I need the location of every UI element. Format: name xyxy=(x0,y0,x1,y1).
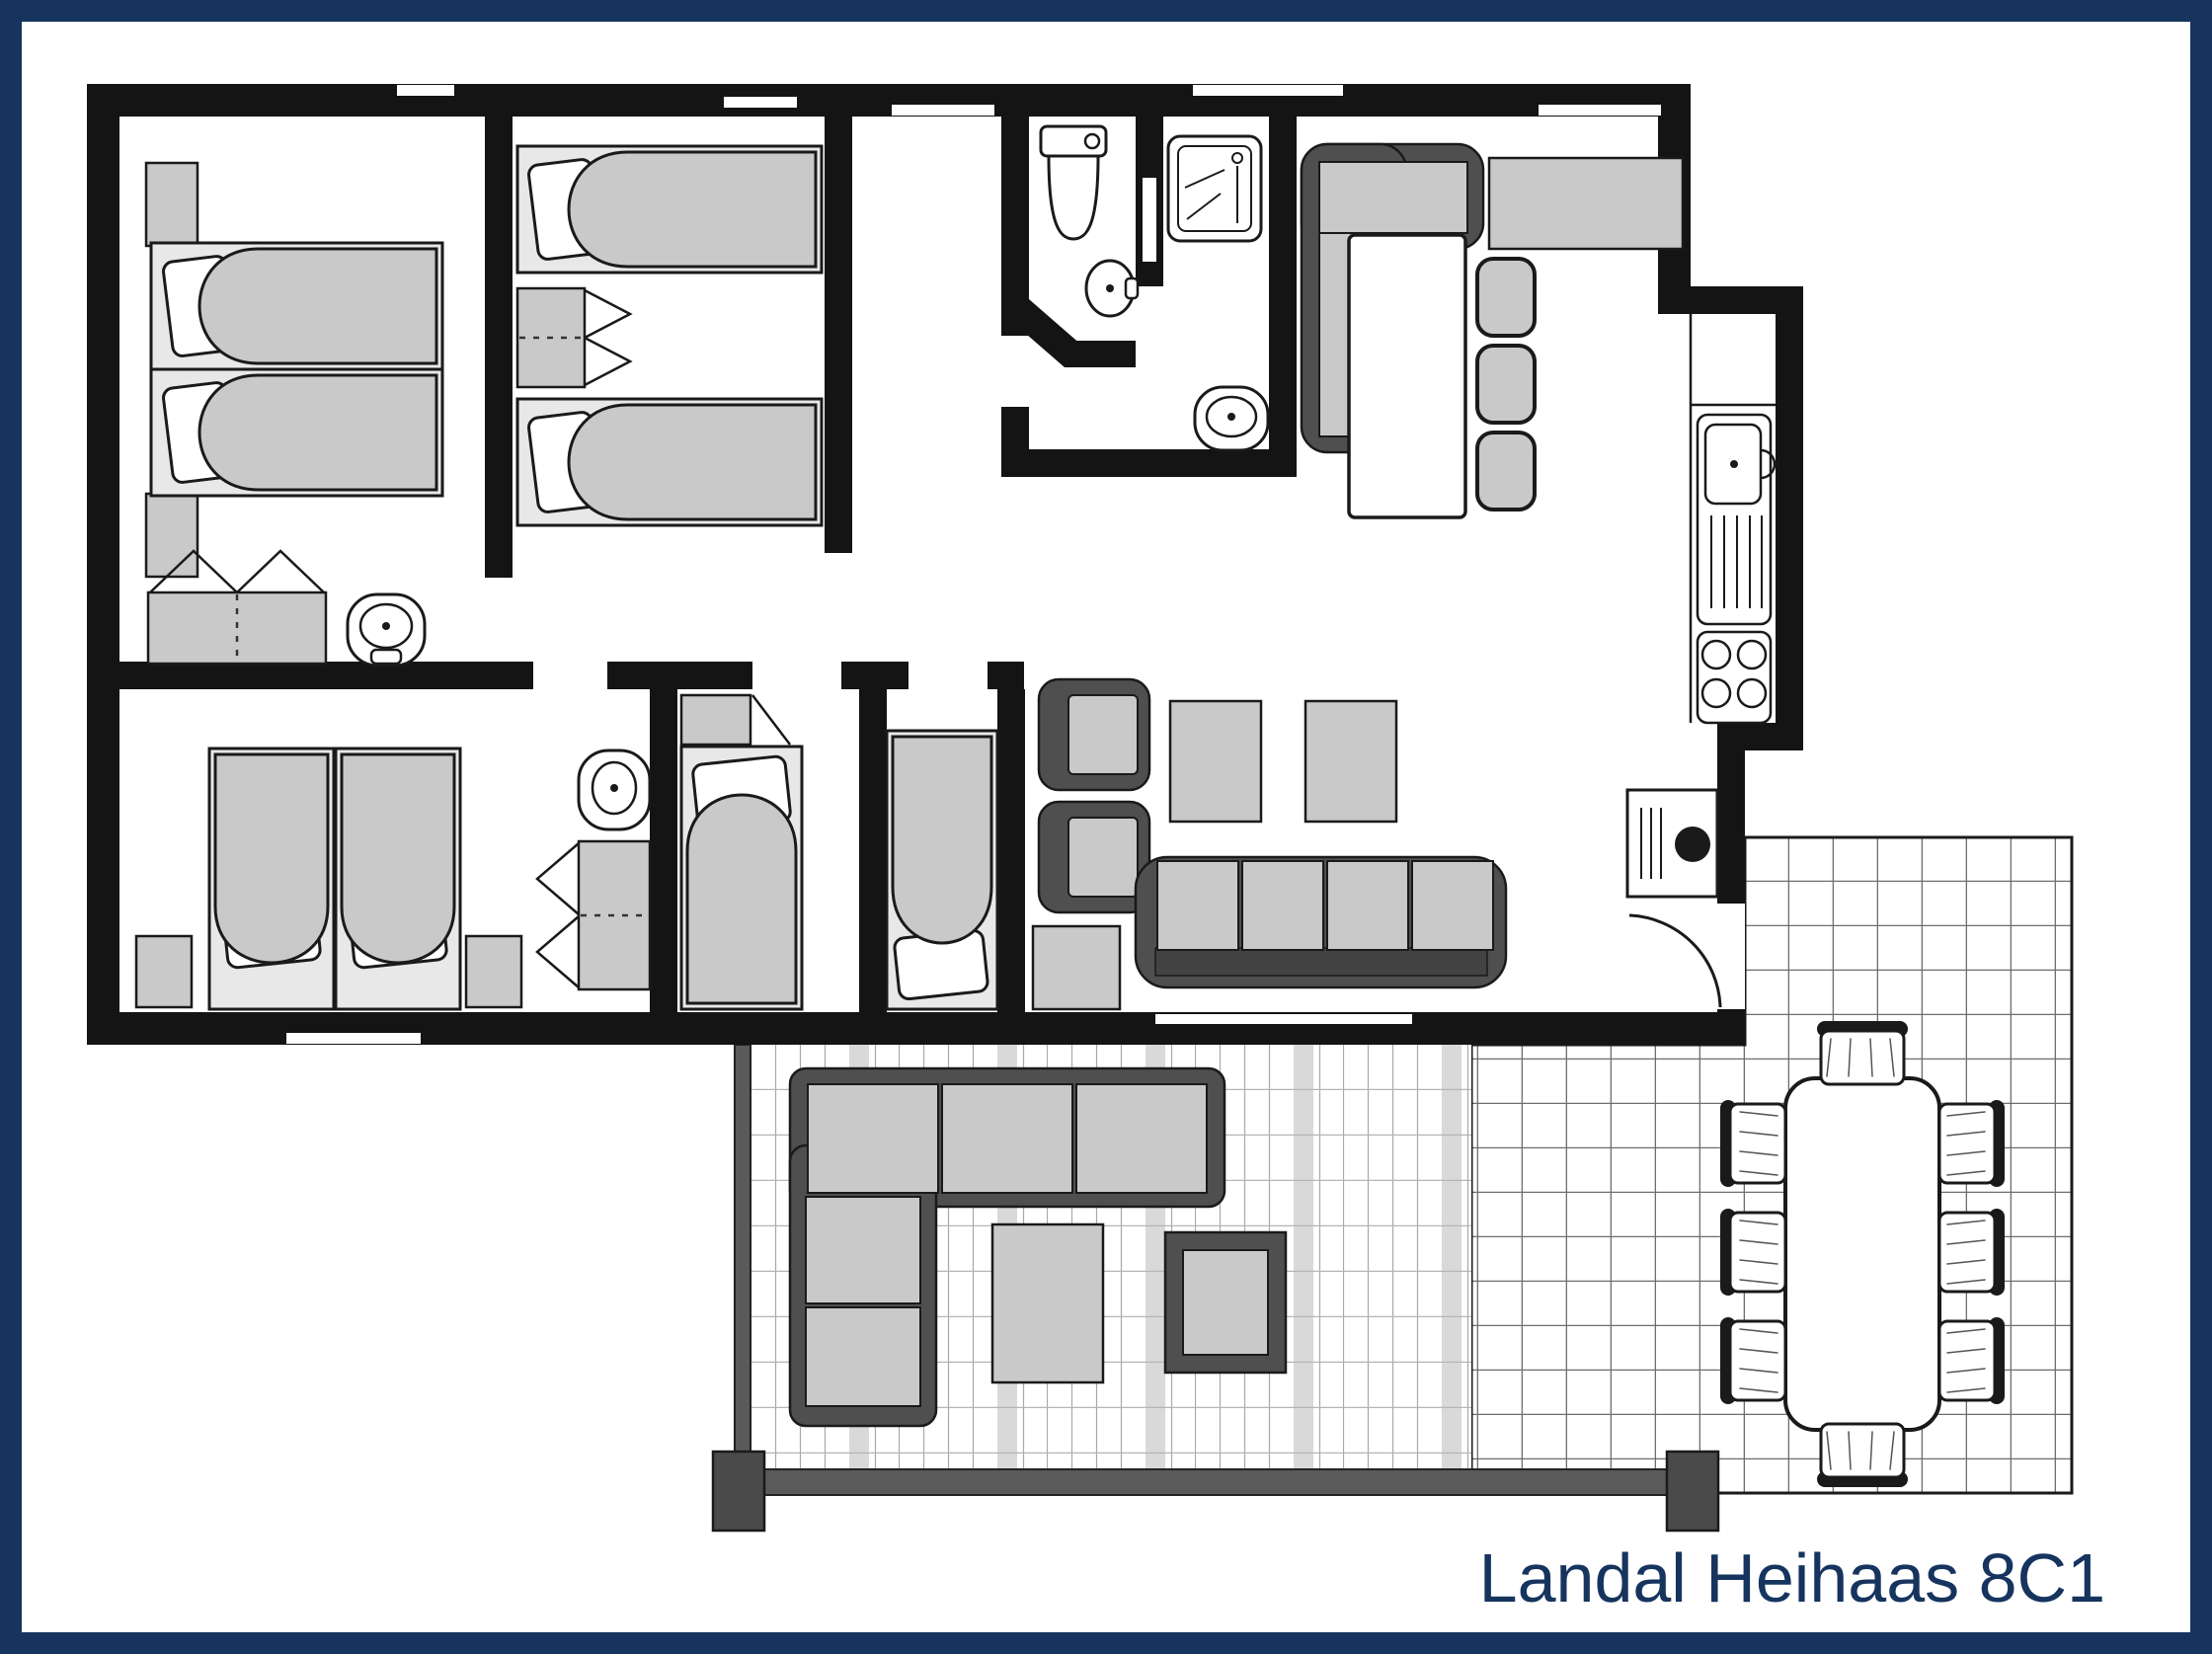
terrace-chair xyxy=(1817,1424,1908,1487)
terrace-lounge-set xyxy=(790,1068,1286,1426)
terrace-chair xyxy=(1939,1317,2005,1404)
nightstand xyxy=(146,163,197,246)
terrace-chair xyxy=(1939,1100,2005,1187)
wall-middle-c xyxy=(841,662,908,689)
nightstand xyxy=(466,936,521,1007)
window-slit xyxy=(724,97,797,108)
terrace-bottom-beam xyxy=(735,1469,1718,1495)
dining-chair xyxy=(1477,433,1535,510)
single-bed xyxy=(336,748,460,1009)
kitchen-sink-unit xyxy=(1698,415,1775,624)
wall-hall-wc-lower xyxy=(1001,407,1029,454)
wall-top xyxy=(87,84,1691,117)
wall-hall-wc-upper xyxy=(1001,117,1029,336)
single-bed xyxy=(681,747,802,1009)
terrace-dining-table xyxy=(1785,1078,1939,1430)
side-table xyxy=(1033,926,1120,1009)
terrace-chair xyxy=(1720,1317,1785,1404)
single-bed xyxy=(151,369,442,496)
washroom-sink xyxy=(1195,387,1268,450)
plan-title: Landal Heihaas 8C1 xyxy=(1479,1539,2105,1616)
sideboard xyxy=(1489,158,1683,249)
single-bed xyxy=(151,243,442,369)
nightstand xyxy=(146,494,197,577)
terrace-chair xyxy=(1817,1021,1908,1084)
window-slit xyxy=(1539,105,1661,116)
terrace-chair xyxy=(1720,1209,1785,1296)
single-bed xyxy=(517,399,822,525)
door-opening-terrace xyxy=(1717,904,1745,1009)
floor-plan: Landal Heihaas 8C1 xyxy=(0,0,2212,1654)
single-bed xyxy=(517,146,822,273)
shower xyxy=(1168,136,1261,241)
wall-middle-a xyxy=(87,662,533,689)
sink xyxy=(348,594,425,666)
terrace-left-beam xyxy=(735,1045,750,1469)
terrace-chair xyxy=(1939,1209,2005,1296)
coffee-table xyxy=(1170,701,1261,822)
sink xyxy=(579,750,650,829)
wall-bedroom6-living xyxy=(997,689,1025,1012)
window-slit xyxy=(1155,1014,1412,1024)
terrace-chair xyxy=(1720,1100,1785,1187)
dining-table xyxy=(1349,235,1465,517)
terrace-post-left xyxy=(713,1452,764,1531)
lounge-coffee-table xyxy=(992,1224,1103,1382)
front-door-slit xyxy=(892,105,994,116)
floor-plan-page: Landal Heihaas 8C1 xyxy=(0,0,2212,1654)
wall-left xyxy=(87,84,119,1045)
armchair xyxy=(1039,802,1149,912)
wall-wc-bottom xyxy=(1065,341,1136,367)
armchair xyxy=(1039,679,1149,790)
kitchen-hob xyxy=(1698,632,1771,723)
nightstand xyxy=(136,936,192,1007)
wall-shower-dining xyxy=(1269,117,1297,477)
single-bed xyxy=(887,731,997,1009)
window-slit xyxy=(397,85,454,96)
wall-kitchen-right xyxy=(1776,286,1803,750)
window-slit xyxy=(1143,178,1156,262)
sofa xyxy=(1136,857,1506,987)
lounge-side-table xyxy=(1165,1232,1286,1373)
closet xyxy=(681,695,750,745)
wall-bedroom2-hall xyxy=(825,117,852,553)
single-bed xyxy=(209,748,334,1009)
wall-washroom-bottom xyxy=(1001,449,1297,477)
terrace-post-right xyxy=(1667,1452,1718,1531)
window-slit xyxy=(286,1033,421,1044)
coffee-table xyxy=(1305,701,1396,822)
window-slit xyxy=(1193,85,1343,96)
wall-middle-d xyxy=(987,662,1024,689)
bedroom-6 xyxy=(887,731,997,1009)
wall-bedroom4-bedroom5 xyxy=(650,689,677,1012)
wall-bedroom5-bedroom6 xyxy=(859,689,887,1012)
dining-chair xyxy=(1477,346,1535,423)
dining-chair xyxy=(1477,259,1535,336)
wall-middle-b xyxy=(607,662,752,689)
wall-bedroom1-bedroom2 xyxy=(485,117,513,578)
fireplace-stove xyxy=(1627,790,1717,897)
